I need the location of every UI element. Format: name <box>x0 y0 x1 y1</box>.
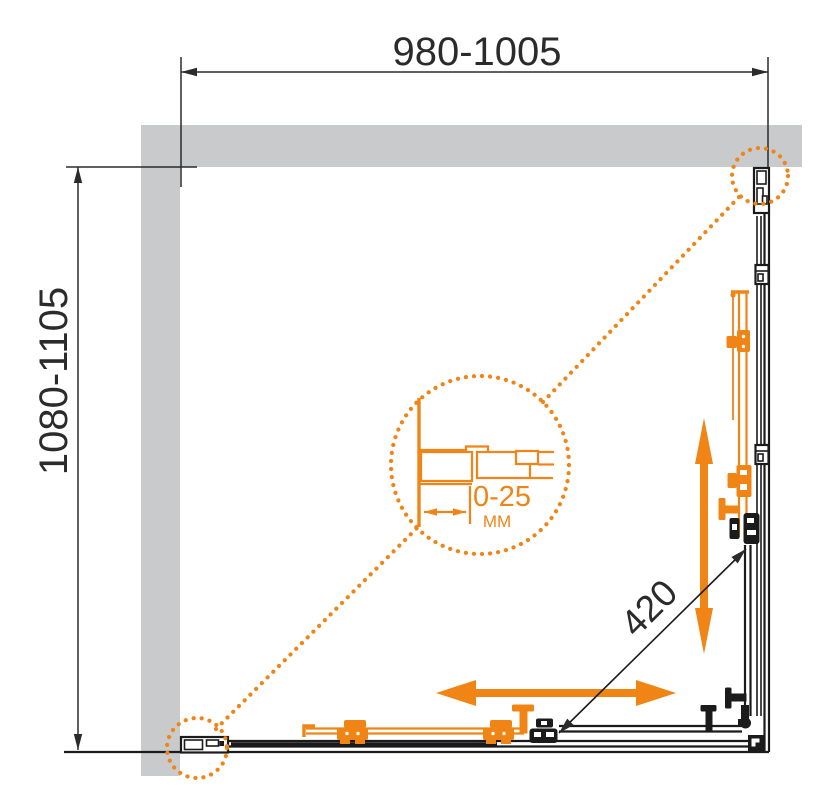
entry-dimension-label: 420 <box>613 572 686 645</box>
left-wall <box>141 125 180 776</box>
drawing-canvas: 980-1005 1080-1105 <box>0 0 821 805</box>
adjustment-unit-label: MM <box>483 512 511 531</box>
panel-connector-lower <box>756 445 769 464</box>
door-roller-icon <box>730 513 760 544</box>
leader-line-upper <box>543 196 740 402</box>
door-end-cap <box>304 726 315 737</box>
width-dimension-label: 980-1005 <box>392 30 561 74</box>
door-knob-icon <box>701 705 717 733</box>
technical-drawing: 980-1005 1080-1105 <box>0 0 821 805</box>
vertical-slide-arrow-icon <box>695 418 713 654</box>
height-dimension-label: 1080-1105 <box>32 287 76 475</box>
horizontal-slide-arrow-icon <box>436 680 676 706</box>
leader-line-lower <box>216 528 417 729</box>
adjustment-profile-drawing: 0-25 MM <box>419 398 554 531</box>
corner-bracket-icon <box>748 735 765 752</box>
adjustment-range-label: 0-25 <box>473 481 531 513</box>
right-door-closed <box>725 513 760 716</box>
adjustment-dimension-arrow-icon <box>424 508 466 515</box>
door-roller-icon <box>530 719 558 744</box>
door-roller-lower-icon <box>728 465 752 497</box>
arrowhead-top-icon <box>74 167 82 183</box>
arrowhead-bottom-icon <box>74 734 82 750</box>
arrowhead-right-icon <box>752 68 768 76</box>
entry-dimension: 420 <box>559 549 746 733</box>
arrowhead-left-icon <box>181 68 197 76</box>
right-wall-profile <box>754 168 769 752</box>
right-sliding-door-open <box>719 292 752 537</box>
door-handle-icon <box>719 498 740 520</box>
panel-connector-upper <box>756 265 769 284</box>
bottom-door-closed <box>530 705 743 743</box>
top-wall <box>141 125 802 167</box>
pivot-joint-icon <box>740 718 751 729</box>
bottom-sliding-door-open <box>304 705 534 745</box>
door-roller-upper-icon <box>727 330 751 352</box>
